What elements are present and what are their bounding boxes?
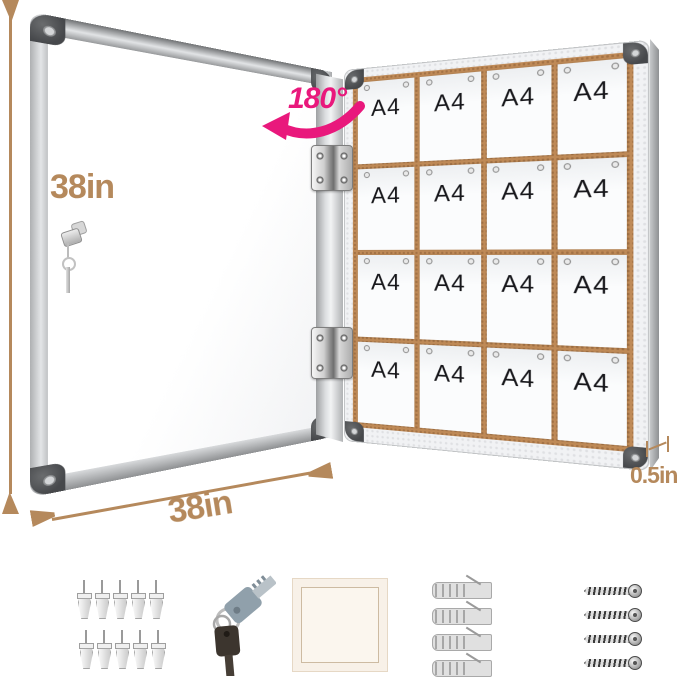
screw-shaft bbox=[584, 611, 630, 619]
screw-icon bbox=[584, 584, 642, 598]
a4-sheet-label: A4 bbox=[358, 356, 415, 386]
lock-cylinder-icon bbox=[60, 227, 83, 247]
pin-needle bbox=[121, 630, 123, 644]
pin-icon bbox=[426, 347, 432, 354]
a4-sheet-label: A4 bbox=[358, 269, 415, 296]
push-pin-icon bbox=[76, 580, 92, 620]
pin-needle bbox=[155, 580, 157, 594]
a4-sheet: A4 bbox=[358, 255, 415, 339]
a4-sheet: A4 bbox=[358, 341, 415, 427]
a4-sheet: A4 bbox=[358, 78, 415, 164]
push-pin-icon bbox=[78, 630, 94, 670]
pin-needle bbox=[103, 630, 105, 644]
pin-icon bbox=[493, 258, 500, 265]
pin-needle bbox=[119, 580, 121, 594]
door-frame-left bbox=[30, 12, 48, 498]
screw-shaft bbox=[584, 659, 630, 667]
a4-sheet-label: A4 bbox=[557, 271, 627, 301]
pin-body bbox=[96, 598, 109, 619]
a4-sheet-label: A4 bbox=[420, 270, 481, 298]
pin-icon bbox=[403, 81, 409, 88]
push-pin-icon bbox=[132, 630, 148, 670]
pin-icon bbox=[612, 356, 620, 363]
push-pin-icon bbox=[148, 580, 164, 620]
a4-sheet: A4 bbox=[358, 166, 415, 250]
a4-sheet: A4 bbox=[420, 71, 481, 160]
height-arrow-bottom-icon bbox=[2, 492, 19, 514]
push-pin-icon bbox=[150, 630, 166, 670]
pin-icon bbox=[537, 258, 544, 265]
a4-sheet-label: A4 bbox=[557, 366, 627, 400]
cabinet-side-depth bbox=[650, 39, 659, 471]
depth-label: 0.5in bbox=[630, 462, 677, 489]
pin-icon bbox=[564, 258, 571, 265]
push-pin-icon bbox=[96, 630, 112, 670]
push-pins-group bbox=[76, 580, 182, 676]
pin-icon bbox=[363, 85, 369, 92]
pin-icon bbox=[468, 75, 475, 82]
pin-icon bbox=[468, 167, 475, 174]
screw-head bbox=[628, 584, 642, 598]
push-pin-icon bbox=[114, 630, 130, 670]
pin-icon bbox=[612, 62, 620, 70]
pin-body bbox=[132, 598, 145, 619]
width-arrow-left-icon bbox=[30, 506, 57, 527]
a4-sheet: A4 bbox=[420, 255, 481, 341]
pin-needle bbox=[101, 580, 103, 594]
screw-icon bbox=[584, 632, 642, 646]
pin-needle bbox=[85, 630, 87, 644]
pin-icon bbox=[612, 258, 620, 265]
a4-sheet: A4 bbox=[557, 350, 627, 446]
a4-sheet: A4 bbox=[486, 347, 551, 439]
pin-icon bbox=[493, 73, 500, 80]
pin-body bbox=[80, 648, 93, 669]
a4-sheet-label: A4 bbox=[486, 176, 551, 206]
screw-icon bbox=[584, 608, 642, 622]
pin-icon bbox=[564, 354, 571, 361]
wall-anchor-icon bbox=[432, 582, 492, 599]
pin-icon bbox=[564, 67, 571, 74]
a4-sheet-label: A4 bbox=[420, 359, 481, 390]
a4-sheet-label: A4 bbox=[420, 87, 481, 119]
a4-sheet: A4 bbox=[486, 65, 551, 158]
height-label: 38in bbox=[50, 168, 114, 207]
pin-needle bbox=[139, 630, 141, 644]
a4-sheet: A4 bbox=[420, 344, 481, 433]
screw-shaft bbox=[584, 587, 630, 595]
pin-icon bbox=[403, 170, 409, 176]
depth-dimension-mark bbox=[646, 436, 672, 460]
a4-sheet: A4 bbox=[557, 156, 627, 249]
screws-group bbox=[584, 584, 646, 672]
board-sample bbox=[292, 578, 388, 672]
pin-icon bbox=[426, 258, 432, 264]
pin-icon bbox=[537, 164, 544, 171]
a4-sheet-label: A4 bbox=[358, 181, 415, 209]
a4-sheet: A4 bbox=[486, 160, 551, 250]
a4-sheet-label: A4 bbox=[486, 362, 551, 394]
pin-body bbox=[78, 598, 91, 619]
a4-sheet: A4 bbox=[420, 163, 481, 250]
corner-cap-icon bbox=[30, 462, 65, 498]
screw-shaft bbox=[584, 635, 630, 643]
width-label: 38in bbox=[165, 483, 234, 532]
a4-sheet: A4 bbox=[557, 58, 627, 154]
push-pin-icon bbox=[130, 580, 146, 620]
corner-cap-icon bbox=[623, 41, 648, 65]
hinge-icon bbox=[311, 145, 353, 191]
pin-icon bbox=[493, 350, 500, 357]
corner-cap-icon bbox=[30, 12, 65, 48]
wall-anchor-icon bbox=[432, 608, 492, 625]
wall-anchors-group bbox=[432, 582, 494, 676]
pin-body bbox=[98, 648, 111, 669]
screw-head bbox=[628, 608, 642, 622]
screw-head bbox=[628, 632, 642, 646]
a4-sheet-label: A4 bbox=[557, 75, 627, 110]
swing-arrow-icon bbox=[260, 96, 365, 148]
screw-head bbox=[628, 656, 642, 670]
pin-icon bbox=[426, 79, 432, 86]
wall-anchor-icon bbox=[432, 634, 492, 651]
lock-with-key-icon bbox=[52, 224, 88, 298]
hinge-icon bbox=[311, 327, 353, 379]
push-pin-icon bbox=[94, 580, 110, 620]
pin-needle bbox=[157, 630, 159, 644]
a4-sheet-label: A4 bbox=[486, 81, 551, 114]
screw-icon bbox=[584, 656, 642, 670]
hanging-key-shaft-icon bbox=[66, 267, 70, 293]
push-pin-icon bbox=[112, 580, 128, 620]
pin-needle bbox=[83, 580, 85, 594]
pin-icon bbox=[403, 346, 409, 353]
pin-icon bbox=[537, 353, 544, 360]
pin-body bbox=[150, 598, 163, 619]
pin-needle bbox=[137, 580, 139, 594]
pin-body bbox=[134, 648, 147, 669]
a4-sheet-label: A4 bbox=[358, 92, 415, 123]
pin-icon bbox=[363, 171, 369, 177]
pin-icon bbox=[468, 349, 475, 356]
width-arrow-right-icon bbox=[307, 462, 334, 483]
cabinet-panel: A4A4A4A4A4A4A4A4A4A4A4A4A4A4A4A4 bbox=[344, 40, 649, 472]
pin-icon bbox=[363, 258, 369, 264]
pin-body bbox=[152, 648, 165, 669]
pin-icon bbox=[468, 258, 475, 264]
height-dimension-line bbox=[9, 16, 12, 494]
pin-icon bbox=[363, 344, 369, 350]
a4-sheet-label: A4 bbox=[557, 173, 627, 205]
pin-icon bbox=[612, 160, 620, 167]
product-illustration: 38in A4A4A4A4A4A4A4A4A4A4A4A4A4A4A4A4 18… bbox=[0, 0, 679, 680]
pin-icon bbox=[403, 258, 409, 264]
pin-icon bbox=[493, 166, 500, 173]
wall-anchor-icon bbox=[432, 660, 492, 677]
pin-icon bbox=[426, 169, 432, 176]
pin-icon bbox=[564, 162, 571, 169]
pin-body bbox=[114, 598, 127, 619]
pin-body bbox=[116, 648, 129, 669]
a4-sheet-label: A4 bbox=[486, 270, 551, 299]
keys-icon bbox=[198, 566, 276, 676]
corner-cap-icon bbox=[345, 421, 364, 442]
pin-icon bbox=[537, 69, 544, 76]
a4-sheet: A4 bbox=[486, 255, 551, 344]
a4-board-grid: A4A4A4A4A4A4A4A4A4A4A4A4A4A4A4A4 bbox=[353, 52, 634, 453]
a4-sheet-label: A4 bbox=[420, 179, 481, 208]
board-sample-inner bbox=[301, 587, 379, 663]
a4-sheet: A4 bbox=[557, 255, 627, 348]
